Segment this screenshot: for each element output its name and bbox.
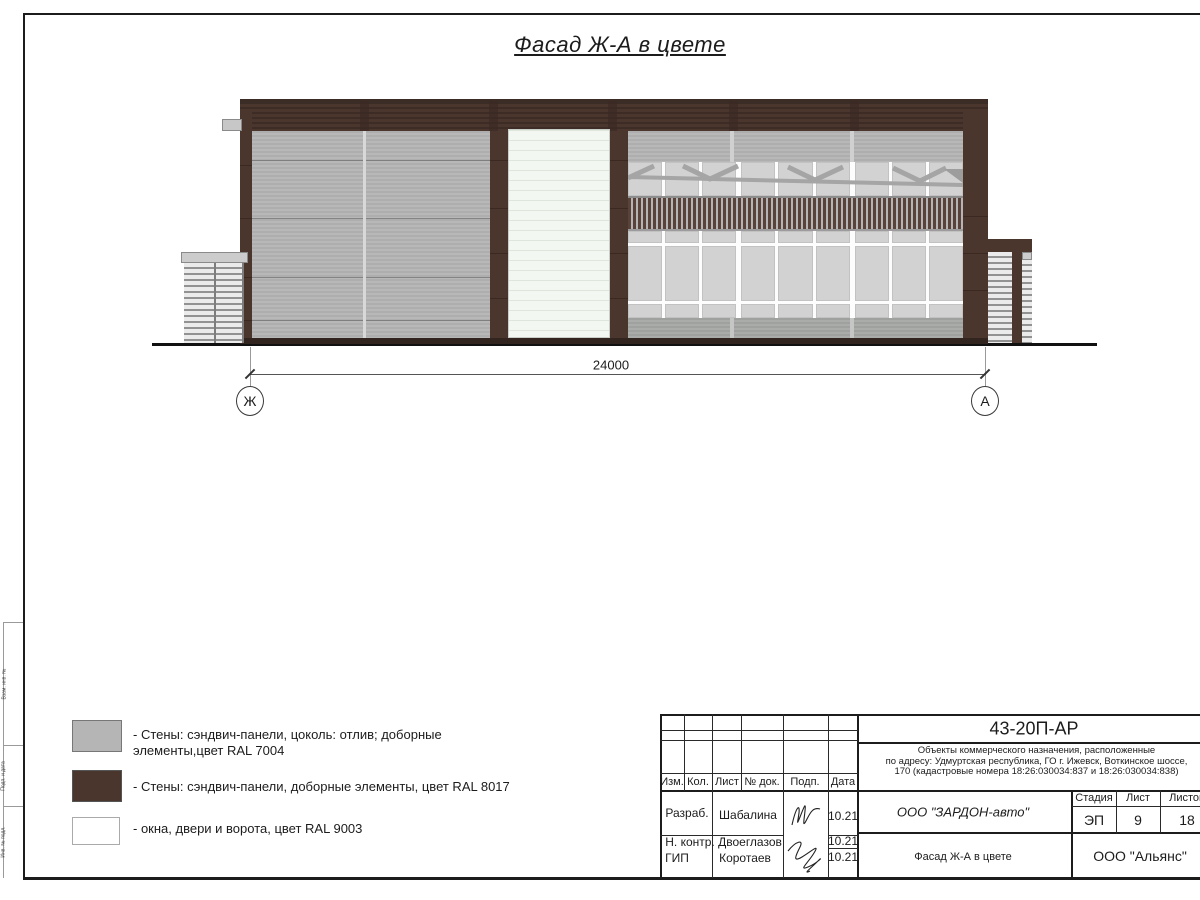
top-band-divider xyxy=(608,101,617,131)
plinth xyxy=(240,338,988,344)
dimension-value: 24000 xyxy=(593,358,629,373)
drawing-sheet: { "sheet": { "title": "Фасад Ж-А в цвете… xyxy=(0,0,1200,900)
frame-top xyxy=(23,13,1200,15)
legend-label-ral8017: - Стены: сэндвич-панели, доборные элемен… xyxy=(133,779,510,795)
col-izm: Изм. xyxy=(660,776,684,788)
extension-line-right xyxy=(985,347,986,387)
gate-pilaster-left xyxy=(490,131,508,338)
sheet-label: Лист xyxy=(1126,792,1150,804)
stamp-drawing-title: Фасад Ж-А в цвете xyxy=(914,851,1012,863)
page-title: Фасад Ж-А в цвете xyxy=(360,32,880,58)
org-name: ООО "Альянс" xyxy=(1093,848,1187,864)
sheet-value: 9 xyxy=(1134,812,1142,828)
louver-band xyxy=(628,196,963,231)
col-list: Лист xyxy=(715,776,739,788)
signer-date: 10.21 xyxy=(828,834,858,848)
sheets-label: Листов xyxy=(1169,792,1200,804)
axis-bubble-a: А xyxy=(971,386,999,416)
stage-value: ЭП xyxy=(1084,812,1104,828)
signer-role: Н. контр. xyxy=(665,835,715,849)
signer-name: Коротаев xyxy=(719,851,771,865)
axis-bubble-zh: Ж xyxy=(236,386,264,416)
frame-bottom xyxy=(23,877,1200,880)
signer-name: Шабалина xyxy=(719,808,777,822)
doc-code: 43-20П-АР xyxy=(990,719,1079,740)
right-canopy-post xyxy=(1012,252,1022,343)
top-band-divider xyxy=(489,101,498,131)
right-louver-screen xyxy=(988,252,1012,343)
col-podp: Подп. xyxy=(790,776,819,788)
truss-silhouette xyxy=(628,162,963,196)
frame-left xyxy=(23,13,25,880)
company-name: ООО "ЗАРДОН-авто" xyxy=(897,805,1029,820)
legend-label-ral7004: - Стены: сэндвич-панели, цоколь: отлив; … xyxy=(133,727,442,759)
sheets-value: 18 xyxy=(1179,812,1195,828)
right-louver-cap xyxy=(1022,252,1032,260)
col-data: Дата xyxy=(831,776,855,788)
dimension-line xyxy=(250,374,986,375)
signature xyxy=(784,833,828,877)
clerestory-windows xyxy=(628,162,963,196)
legend-swatch-ral9003 xyxy=(72,817,120,845)
left-wall-panels xyxy=(252,131,490,338)
gate-pilaster-right xyxy=(610,131,628,338)
left-louver-screen xyxy=(184,263,244,343)
signer-date: 10.21 xyxy=(828,809,858,823)
curtain-glazing xyxy=(628,231,963,318)
margin-label-vzam: Взам. инв. № xyxy=(0,622,22,745)
signer-name: Двоеглазов xyxy=(718,835,782,849)
legend-swatch-ral8017 xyxy=(72,770,122,802)
top-band-divider xyxy=(360,101,369,131)
signature xyxy=(786,795,826,835)
gate xyxy=(508,129,610,338)
signer-role: Разраб. xyxy=(665,806,708,820)
left-ledge xyxy=(222,119,242,131)
legend-swatch-ral7004 xyxy=(72,720,122,752)
signer-role: ГИП xyxy=(665,851,689,865)
base-panel-band xyxy=(628,318,963,338)
col-doc: № док. xyxy=(744,776,779,788)
project-description: Объекты коммерческого назначения, распол… xyxy=(858,746,1200,778)
legend-label-ral9003: - окна, двери и ворота, цвет RAL 9003 xyxy=(133,821,362,837)
col-kol: Кол. xyxy=(687,776,709,788)
top-band-divider xyxy=(850,101,859,131)
upper-panel-band xyxy=(628,131,963,162)
margin-label-podp: Подп. и дата xyxy=(0,745,22,806)
margin-label-inv: Инв. № подл. xyxy=(0,806,22,878)
right-canopy xyxy=(985,239,1032,252)
corner-pilaster-right xyxy=(963,110,988,344)
top-band-divider xyxy=(729,101,738,131)
stage-label: Стадия xyxy=(1075,792,1113,804)
extension-line-left xyxy=(250,347,251,387)
right-louver-screen-2 xyxy=(1022,260,1032,343)
panel-joint-vertical xyxy=(363,131,366,338)
signer-date: 10.21 xyxy=(828,850,858,864)
left-louver-cap xyxy=(181,252,248,263)
